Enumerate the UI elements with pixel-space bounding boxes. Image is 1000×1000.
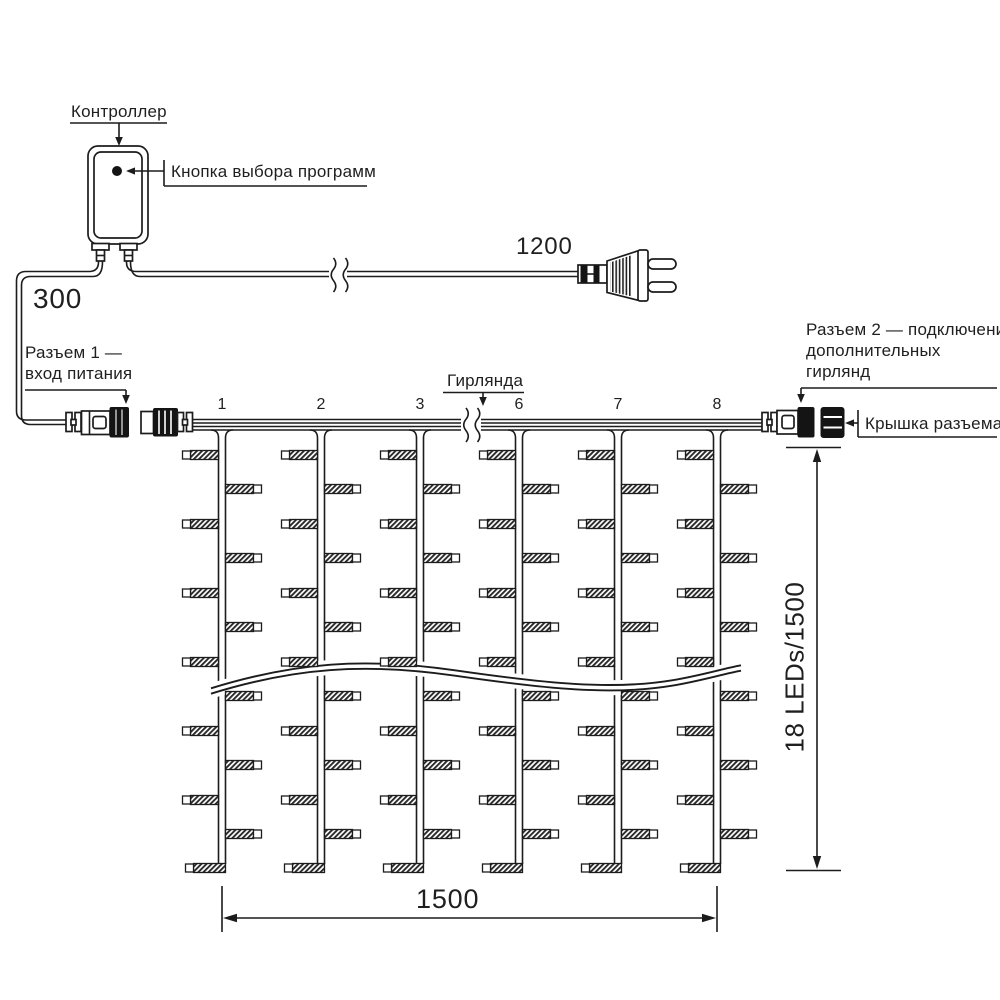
led-tip — [749, 761, 757, 769]
led — [721, 623, 749, 632]
cord-break-symbol — [331, 258, 348, 292]
led-tip — [282, 727, 290, 735]
led — [290, 451, 318, 460]
led — [325, 623, 353, 632]
break-wave — [211, 663, 741, 693]
drop-wire — [226, 430, 234, 864]
dimension-1200: 1200 — [516, 233, 573, 261]
led — [622, 554, 650, 563]
diagram-linework — [0, 0, 1000, 1000]
led-tip — [381, 727, 389, 735]
led — [424, 830, 452, 839]
led-tip — [579, 796, 587, 804]
led-tip — [480, 796, 488, 804]
led-tip — [353, 485, 361, 493]
led-tip — [452, 692, 460, 700]
led-tip — [353, 830, 361, 838]
led-tip — [678, 451, 686, 459]
led — [325, 830, 353, 839]
power-plug — [578, 250, 676, 301]
led — [325, 485, 353, 494]
led-tip — [254, 623, 262, 631]
connector2-label-line3: гирлянд — [806, 361, 1000, 382]
led — [686, 589, 714, 598]
connector2-label: Разъем 2 — подключение дополнительных ги… — [806, 319, 1000, 382]
plug-prong — [648, 282, 676, 292]
led-tip — [579, 451, 587, 459]
led-tip — [480, 727, 488, 735]
led — [290, 658, 318, 667]
led-tip — [254, 485, 262, 493]
led — [226, 761, 254, 770]
controller-box — [88, 146, 148, 261]
led-tip — [353, 692, 361, 700]
controller-label: Контроллер — [71, 101, 167, 122]
led — [191, 796, 219, 805]
connector-cap-label: Крышка разъема — [865, 413, 1000, 434]
led — [587, 796, 615, 805]
led — [587, 727, 615, 736]
connector2-label-line2: дополнительных — [806, 340, 1000, 361]
led — [622, 623, 650, 632]
led-tip — [579, 658, 587, 666]
led — [290, 727, 318, 736]
led-tip — [678, 796, 686, 804]
led-tip — [681, 864, 689, 872]
led — [389, 589, 417, 598]
cable-break-symbol — [464, 408, 480, 442]
led-tip — [353, 761, 361, 769]
led-tip — [483, 864, 491, 872]
led-tip — [678, 727, 686, 735]
led — [587, 658, 615, 667]
led — [622, 485, 650, 494]
led-tip — [282, 451, 290, 459]
led-tip — [650, 485, 658, 493]
connector1-label: Разъем 1 — вход питания — [25, 342, 132, 384]
led — [488, 727, 516, 736]
led-tip — [749, 485, 757, 493]
drop-number-2: 2 — [310, 396, 332, 414]
led — [194, 864, 226, 873]
led — [491, 864, 523, 873]
dimension-300: 300 — [33, 283, 82, 315]
led-tip — [749, 554, 757, 562]
led-tip — [183, 658, 191, 666]
drop-wire — [523, 430, 531, 864]
dimension-18leds-1500: 18 LEDs/1500 — [780, 587, 811, 753]
led-tip — [650, 623, 658, 631]
led-tip — [282, 796, 290, 804]
led — [488, 451, 516, 460]
led-tip — [582, 864, 590, 872]
led-tip — [254, 830, 262, 838]
led — [689, 864, 721, 873]
led — [523, 761, 551, 770]
led — [686, 727, 714, 736]
led-tip — [579, 520, 587, 528]
led-tip — [353, 623, 361, 631]
led — [590, 864, 622, 873]
led — [424, 623, 452, 632]
led — [622, 692, 650, 701]
led — [389, 520, 417, 529]
drop-wire — [424, 430, 432, 864]
led — [226, 485, 254, 494]
led — [523, 485, 551, 494]
led-tip — [183, 451, 191, 459]
led — [622, 761, 650, 770]
drop-number-7: 7 — [607, 396, 629, 414]
led-tip — [579, 589, 587, 597]
led — [191, 520, 219, 529]
led — [721, 830, 749, 839]
led — [389, 796, 417, 805]
led-tip — [254, 761, 262, 769]
light-curtain-diagram: Контроллер Кнопка выбора программ 300 12… — [0, 0, 1000, 1000]
garland-leds — [183, 451, 757, 873]
led — [721, 692, 749, 701]
garland-cable — [193, 408, 763, 442]
power-cord — [127, 258, 579, 292]
led — [523, 554, 551, 563]
led — [325, 692, 353, 701]
led-tip — [381, 520, 389, 528]
led-tip — [678, 658, 686, 666]
drop-number-8: 8 — [706, 396, 728, 414]
led — [325, 554, 353, 563]
connector1-label-line2: вход питания — [25, 363, 132, 384]
connector2-label-line1: Разъем 2 — подключение — [806, 319, 1000, 340]
led-tip — [183, 727, 191, 735]
led-tip — [353, 554, 361, 562]
led — [686, 658, 714, 667]
dimension-1500: 1500 — [416, 884, 479, 915]
led-tip — [650, 692, 658, 700]
led-tip — [285, 864, 293, 872]
led — [226, 830, 254, 839]
connector-cap — [821, 408, 844, 438]
led-tip — [551, 623, 559, 631]
drop-wire — [325, 430, 333, 864]
led — [290, 520, 318, 529]
controller-leader — [70, 123, 167, 146]
controller-nipples — [92, 244, 137, 262]
led-tip — [381, 796, 389, 804]
led-tip — [452, 623, 460, 631]
connector1-label-line1: Разъем 1 — — [25, 342, 132, 363]
led — [686, 520, 714, 529]
led — [226, 554, 254, 563]
led — [389, 727, 417, 736]
connector-2 — [762, 408, 814, 438]
led — [488, 589, 516, 598]
led-tip — [480, 451, 488, 459]
led-tip — [384, 864, 392, 872]
led-tip — [678, 589, 686, 597]
led-tip — [579, 727, 587, 735]
led — [424, 761, 452, 770]
led — [226, 692, 254, 701]
led-tip — [551, 485, 559, 493]
led-tip — [381, 589, 389, 597]
led — [721, 761, 749, 770]
led — [191, 727, 219, 736]
led — [523, 692, 551, 701]
led — [488, 658, 516, 667]
led-tip — [452, 830, 460, 838]
led-tip — [183, 796, 191, 804]
program-button-label: Кнопка выбора программ — [171, 161, 376, 182]
led — [587, 451, 615, 460]
led-tip — [749, 692, 757, 700]
led — [290, 796, 318, 805]
led-tip — [282, 589, 290, 597]
led — [488, 520, 516, 529]
led — [523, 623, 551, 632]
led — [392, 864, 424, 873]
led-tip — [650, 830, 658, 838]
led-tip — [254, 692, 262, 700]
led — [325, 761, 353, 770]
drop-number-3: 3 — [409, 396, 431, 414]
led — [389, 451, 417, 460]
led — [721, 485, 749, 494]
led — [587, 520, 615, 529]
led-tip — [183, 589, 191, 597]
led-tip — [480, 658, 488, 666]
led — [293, 864, 325, 873]
led — [686, 451, 714, 460]
led-tip — [381, 658, 389, 666]
led — [191, 658, 219, 667]
led-tip — [480, 520, 488, 528]
led-tip — [551, 692, 559, 700]
led-tip — [749, 623, 757, 631]
led-tip — [381, 451, 389, 459]
led — [424, 554, 452, 563]
drop-wire — [622, 430, 630, 864]
connector2-leader — [797, 388, 997, 403]
led-tip — [452, 554, 460, 562]
led — [622, 830, 650, 839]
led — [424, 485, 452, 494]
led-tip — [282, 520, 290, 528]
led — [523, 830, 551, 839]
led-tip — [749, 830, 757, 838]
led-tip — [650, 554, 658, 562]
led-tip — [678, 520, 686, 528]
connector-1 — [66, 408, 193, 438]
led-tip — [650, 761, 658, 769]
led — [686, 796, 714, 805]
led-tip — [186, 864, 194, 872]
led — [290, 589, 318, 598]
led-tip — [551, 761, 559, 769]
program-button-dot — [113, 167, 122, 176]
led — [226, 623, 254, 632]
led — [721, 554, 749, 563]
led — [389, 658, 417, 667]
garland-label: Гирлянда — [447, 370, 523, 391]
led-tip — [480, 589, 488, 597]
led — [488, 796, 516, 805]
drop-number-6: 6 — [508, 396, 530, 414]
connector1-leader — [25, 390, 130, 404]
plug-prong — [648, 259, 676, 269]
led-tip — [452, 761, 460, 769]
drop-wire — [721, 430, 729, 864]
led — [424, 692, 452, 701]
led-tip — [452, 485, 460, 493]
led-tip — [254, 554, 262, 562]
led — [191, 589, 219, 598]
drop-number-1: 1 — [211, 396, 233, 414]
led — [191, 451, 219, 460]
led-tip — [551, 830, 559, 838]
led-tip — [183, 520, 191, 528]
led-tip — [282, 658, 290, 666]
led — [587, 589, 615, 598]
led-tip — [551, 554, 559, 562]
